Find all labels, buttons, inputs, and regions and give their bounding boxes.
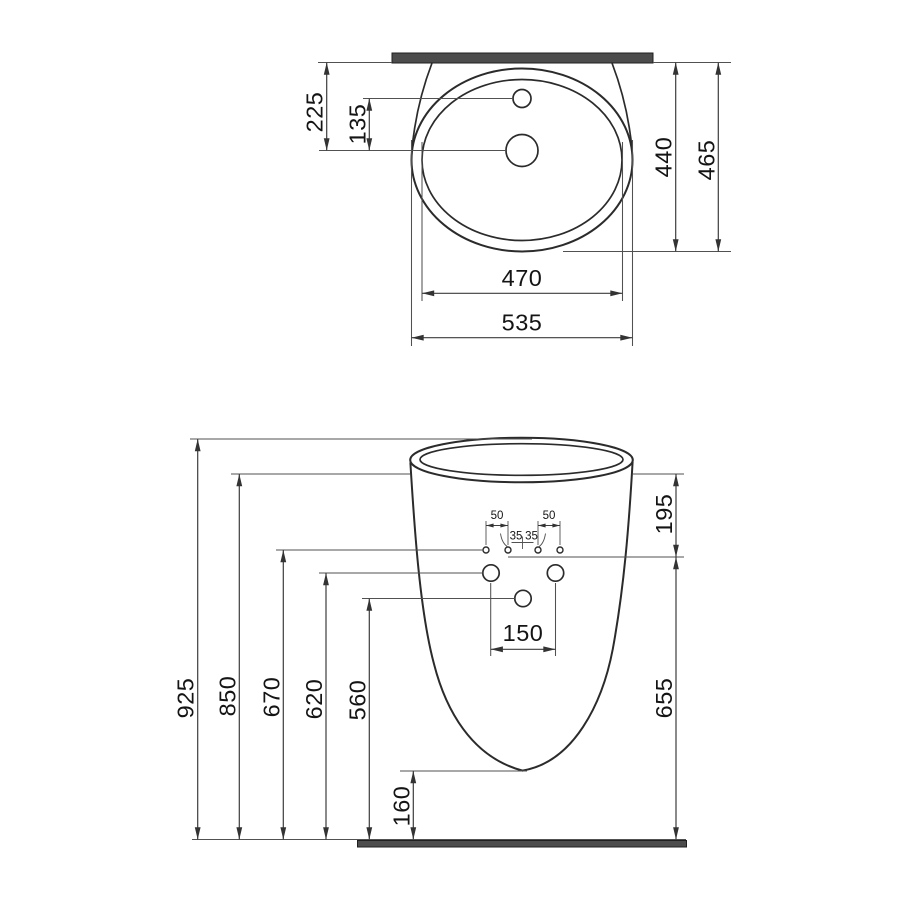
mount-hole-4 [557,547,563,553]
dimension-150-label: 150 [503,620,544,646]
dimension-35-left-label: 35 [510,531,523,543]
dimension-50-left-label: 50 [491,510,504,522]
dimension-195-label: 195 [651,494,677,535]
dimension-160-label: 160 [388,786,414,827]
mount-hole-3 [535,547,541,553]
leader-hook-left [501,534,509,548]
dimension-225-label: 225 [302,92,328,133]
dimension-560-label: 560 [344,680,370,721]
dimension-470-label: 470 [502,265,543,291]
top-view: 225 135 440 465 470 535 [302,53,731,346]
leader-hook-right [539,534,546,548]
drain-hole [506,135,538,167]
mount-hole-2 [505,547,511,553]
drain-outlet-hole [515,590,531,606]
drawing-svg: 225 135 440 465 470 535 [0,0,900,900]
floor-bar [358,841,687,848]
dimension-35-right-label: 35 [525,531,538,543]
tap-hole [513,90,531,108]
supply-hole-left [483,565,499,581]
dimension-655-label: 655 [651,678,677,719]
mount-hole-1 [483,547,489,553]
dimension-465-label: 465 [693,140,719,181]
body-right-edge [523,462,633,771]
wall-bar [392,53,653,63]
dimension-535-label: 535 [502,310,543,336]
rim-inner-ellipse [420,444,623,476]
dimension-440-label: 440 [651,137,677,178]
washbasin-dimension-drawing: 225 135 440 465 470 535 [0,0,900,900]
dimension-50-right-label: 50 [543,510,556,522]
front-view: 925 850 670 620 560 195 655 150 160 50 5… [173,438,687,847]
dimension-850-label: 850 [214,676,240,717]
dimension-620-label: 620 [301,679,327,720]
dimension-670-label: 670 [258,677,284,718]
body-left-edge [410,463,522,771]
dimension-135-label: 135 [344,104,370,145]
supply-hole-right [547,565,563,581]
dimension-925-label: 925 [173,678,199,719]
